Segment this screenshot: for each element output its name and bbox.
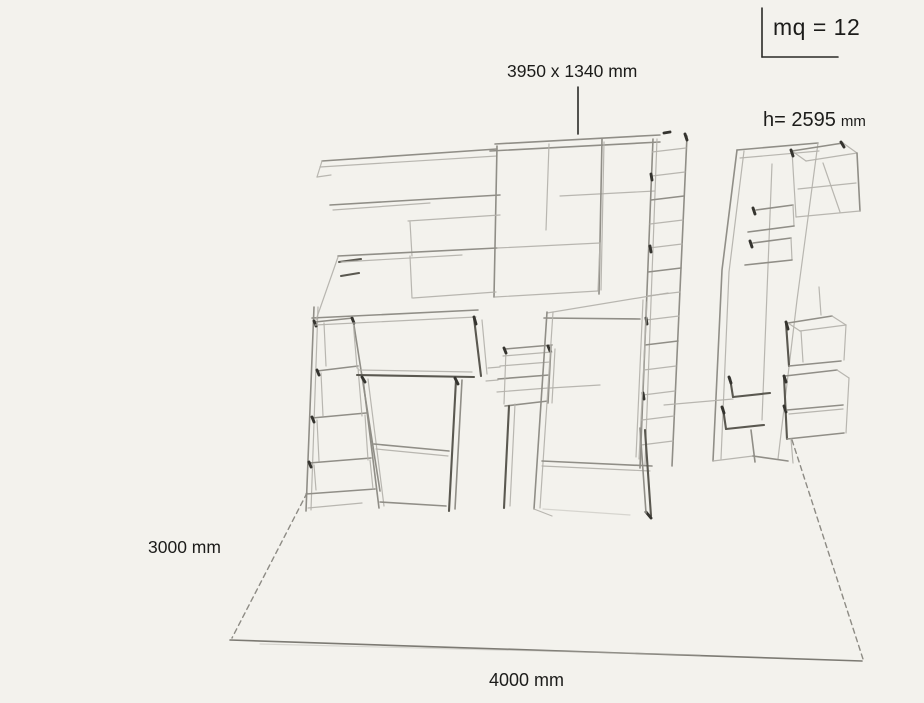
right-stacked-cabinets [784,287,849,463]
top-right-box [791,142,860,217]
furniture-sketch [0,0,924,703]
height-unit: mm [841,113,866,130]
wall-shelf [317,149,655,210]
room-depth-label: 3000 mm [148,537,221,558]
center-cabinet [490,135,660,297]
area-label: mq = 12 [773,14,860,41]
height-label: h= 2595mm [763,109,866,132]
height-value: h= 2595 [763,109,836,131]
right-panel-table [534,293,733,518]
sketch-canvas: mq = 12 3950 x 1340 mm h= 2595mm 3000 mm… [0,0,924,703]
slatted-cabinet [486,345,555,508]
wardrobe [713,143,819,462]
center-table [357,370,474,511]
wall-unit-size-label: 3950 x 1340 mm [507,61,637,82]
room-width-label: 4000 mm [489,670,564,691]
floor-outline [230,440,863,661]
ladder-rack [640,132,687,468]
